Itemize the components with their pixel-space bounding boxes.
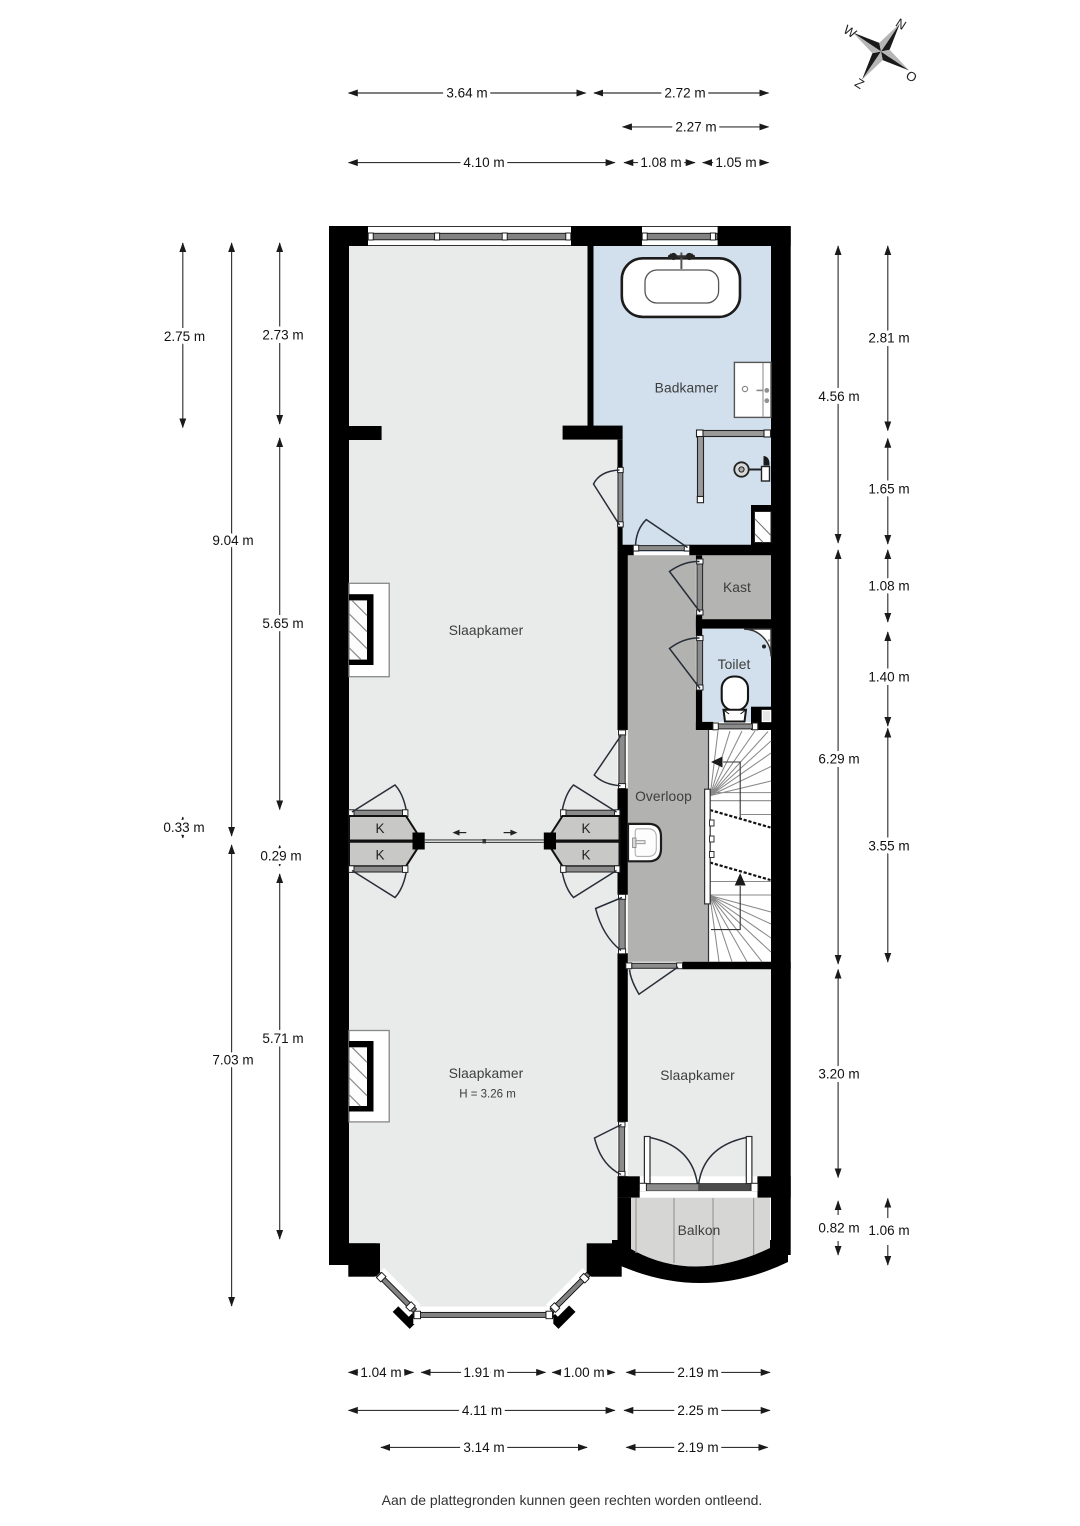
svg-text:Badkamer: Badkamer (655, 381, 719, 396)
svg-text:3.55 m: 3.55 m (868, 839, 909, 854)
svg-text:9.04 m: 9.04 m (212, 533, 253, 548)
svg-text:H = 3.26 m: H = 3.26 m (459, 1089, 516, 1101)
svg-text:2.72 m: 2.72 m (664, 86, 705, 101)
svg-text:3.14 m: 3.14 m (463, 1440, 504, 1455)
svg-text:1.05 m: 1.05 m (715, 155, 756, 170)
svg-text:K: K (581, 821, 590, 836)
svg-text:1.04 m: 1.04 m (360, 1365, 401, 1380)
svg-text:5.65 m: 5.65 m (262, 616, 303, 631)
svg-text:3.64 m: 3.64 m (446, 86, 487, 101)
svg-text:1.91 m: 1.91 m (463, 1365, 504, 1380)
svg-text:3.20 m: 3.20 m (818, 1067, 859, 1082)
svg-text:1.08 m: 1.08 m (868, 579, 909, 594)
svg-text:1.00 m: 1.00 m (563, 1365, 604, 1380)
svg-text:K: K (375, 821, 384, 836)
svg-text:4.11 m: 4.11 m (462, 1403, 502, 1418)
svg-text:2.75 m: 2.75 m (164, 329, 205, 344)
svg-text:2.81 m: 2.81 m (868, 331, 909, 346)
svg-text:1.65 m: 1.65 m (868, 482, 909, 497)
svg-text:1.06 m: 1.06 m (868, 1223, 909, 1238)
svg-text:0.82 m: 0.82 m (818, 1221, 859, 1236)
svg-text:Kast: Kast (723, 580, 751, 595)
svg-text:Slaapkamer: Slaapkamer (449, 1066, 524, 1081)
svg-text:2.27 m: 2.27 m (675, 119, 716, 134)
svg-text:1.08 m: 1.08 m (640, 155, 681, 170)
svg-text:2.19 m: 2.19 m (677, 1365, 718, 1380)
svg-text:Toilet: Toilet (718, 657, 751, 672)
svg-text:2.73 m: 2.73 m (262, 327, 303, 342)
svg-text:K: K (581, 847, 590, 862)
svg-text:Slaapkamer: Slaapkamer (660, 1068, 735, 1083)
svg-text:4.56 m: 4.56 m (818, 389, 859, 404)
svg-text:7.03 m: 7.03 m (212, 1053, 253, 1068)
svg-text:2.19 m: 2.19 m (677, 1440, 718, 1455)
svg-text:2.25 m: 2.25 m (677, 1403, 718, 1418)
svg-text:1.40 m: 1.40 m (868, 670, 909, 685)
svg-text:Slaapkamer: Slaapkamer (449, 623, 524, 638)
svg-text:Aan de plattegronden kunnen ge: Aan de plattegronden kunnen geen rechten… (382, 1492, 763, 1508)
svg-text:Overloop: Overloop (635, 789, 692, 804)
svg-text:6.29 m: 6.29 m (818, 752, 859, 767)
svg-text:Balkon: Balkon (678, 1223, 721, 1238)
svg-text:0.33 m: 0.33 m (163, 820, 204, 835)
svg-text:0.29 m: 0.29 m (260, 849, 301, 864)
svg-text:K: K (375, 847, 384, 862)
svg-text:5.71 m: 5.71 m (262, 1031, 303, 1046)
svg-text:4.10 m: 4.10 m (463, 155, 504, 170)
